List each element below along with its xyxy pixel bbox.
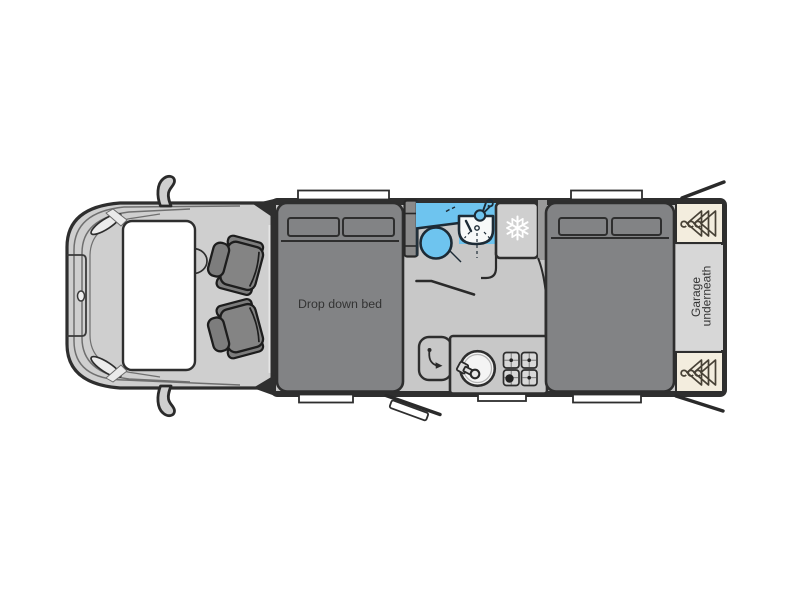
- svg-text:underneath: underneath: [700, 266, 714, 327]
- svg-text:Drop down bed: Drop down bed: [298, 297, 382, 311]
